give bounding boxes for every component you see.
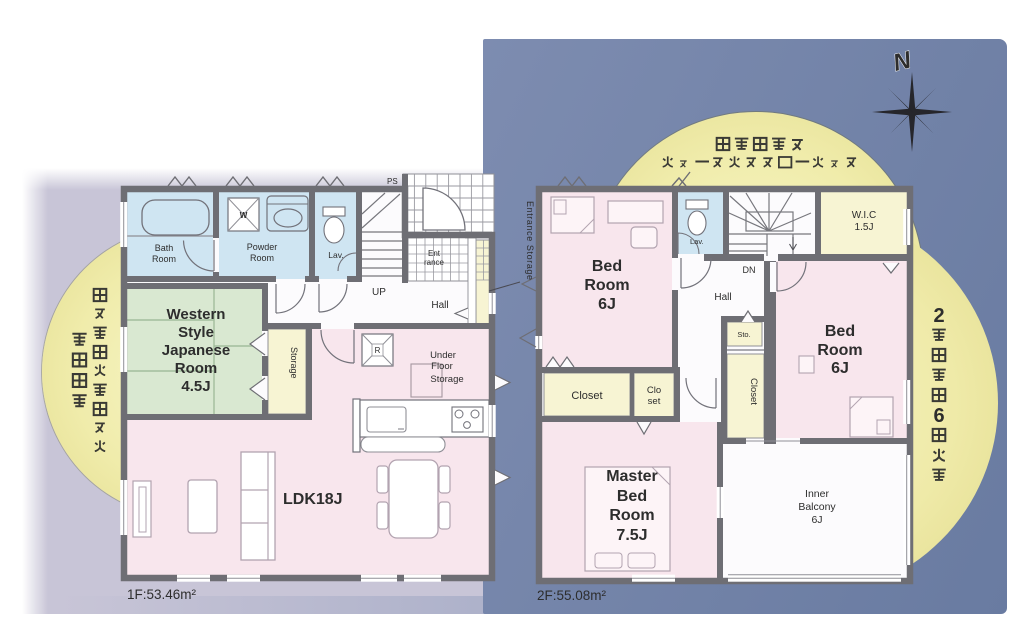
svg-text:6J: 6J [831,360,849,377]
svg-text:Western: Western [167,306,226,323]
svg-text:Lav.: Lav. [328,250,343,260]
svg-text:Storage: Storage [430,374,463,385]
svg-text:1.5J: 1.5J [855,222,874,233]
svg-text:set: set [648,396,661,407]
svg-text:R: R [375,346,381,355]
svg-text:LDK18J: LDK18J [283,491,343,508]
svg-text:PS: PS [387,177,398,186]
svg-text:Room: Room [817,342,862,359]
svg-text:2F:55.08m²: 2F:55.08m² [537,588,607,603]
svg-text:UP: UP [372,287,386,298]
svg-text:Lav.: Lav. [690,237,704,246]
svg-text:Powder: Powder [247,242,278,252]
svg-text:DN: DN [743,265,756,275]
svg-text:Room: Room [609,507,654,524]
svg-text:Japanese: Japanese [162,342,230,359]
svg-text:rance: rance [424,258,445,267]
svg-text:Sto.: Sto. [737,330,750,339]
svg-text:4.5J: 4.5J [181,378,210,395]
svg-text:Floor: Floor [431,361,453,372]
svg-text:N: N [890,46,914,77]
svg-text:Room: Room [584,277,629,294]
svg-text:Ent: Ent [428,249,441,258]
svg-text:Hall: Hall [431,300,448,311]
svg-text:Room: Room [175,360,218,377]
svg-text:Bed: Bed [617,488,647,505]
svg-text:W: W [240,211,248,220]
svg-text:Storage: Storage [289,347,299,379]
svg-text:Bed: Bed [825,323,855,340]
svg-text:Master: Master [606,468,658,485]
svg-text:Under: Under [430,350,456,361]
svg-text:Closet: Closet [571,390,602,402]
svg-text:1F:53.46m²: 1F:53.46m² [127,587,197,602]
svg-text:Room: Room [250,253,274,263]
svg-text:6J: 6J [811,514,822,526]
svg-text:Balcony: Balcony [798,501,836,513]
svg-text:W.I.C: W.I.C [852,210,876,221]
svg-text:2: 2 [933,305,944,327]
svg-text:7.5J: 7.5J [616,527,647,544]
svg-text:Room: Room [152,254,176,264]
svg-text:Clo: Clo [647,385,661,396]
svg-text:6: 6 [933,405,944,427]
svg-text:Hall: Hall [714,292,731,303]
svg-text:Closet: Closet [748,378,759,405]
svg-text:Style: Style [178,324,214,341]
svg-text:Bed: Bed [592,258,622,275]
svg-text:6J: 6J [598,296,616,313]
svg-text:Entrance Storage: Entrance Storage [525,201,535,281]
svg-text:Inner: Inner [805,488,829,500]
svg-text:Bath: Bath [155,243,174,253]
